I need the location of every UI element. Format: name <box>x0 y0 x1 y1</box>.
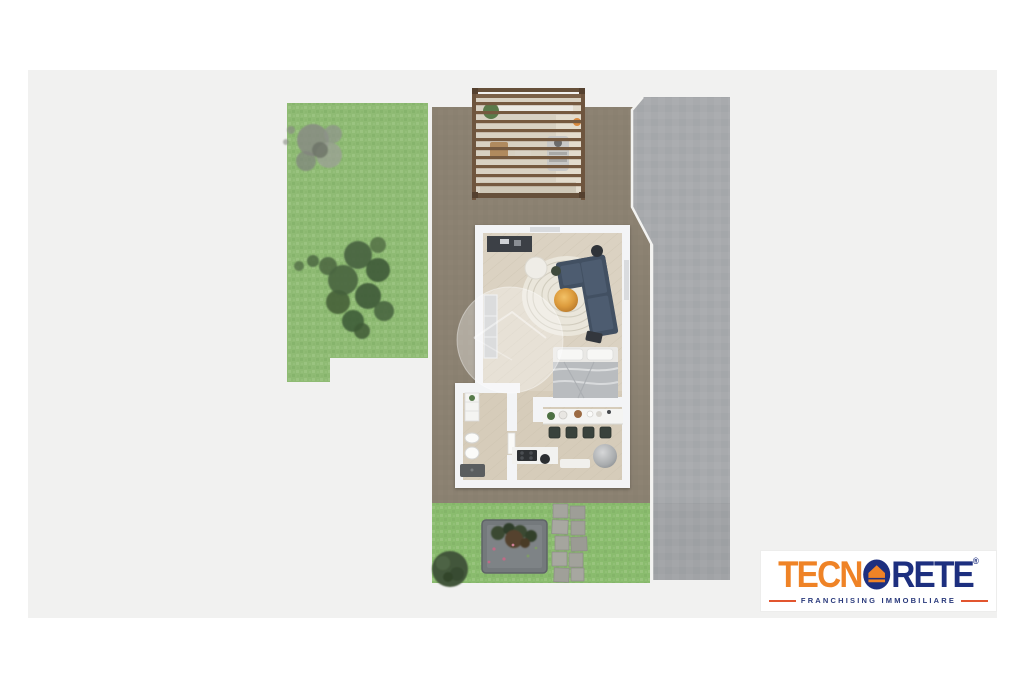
doormat <box>560 459 590 468</box>
pergola <box>472 88 585 200</box>
floor-lamp <box>591 245 603 257</box>
round-table <box>593 444 617 468</box>
floorplan-photo: TECN RETE ® FRANCHISING IMMOBILIARE <box>28 70 997 618</box>
tecnorete-logo: TECN RETE ® FRANCHISING IMMOBILIARE <box>760 550 997 612</box>
pillow <box>587 349 613 360</box>
plant-pot <box>551 266 561 276</box>
brand-text-rete: RETE <box>891 556 973 593</box>
paver <box>554 568 569 583</box>
tagline-rule-left <box>769 600 796 602</box>
franchising-tagline: FRANCHISING IMMOBILIARE <box>767 596 990 605</box>
kitchen-bar <box>543 409 623 424</box>
page-background: TECN RETE ® FRANCHISING IMMOBILIARE <box>0 0 1024 682</box>
paver <box>571 521 585 535</box>
cooktop <box>517 450 537 461</box>
bathroom-right-wall <box>507 391 517 431</box>
tv-cabinet <box>487 236 532 252</box>
bar-stool <box>549 427 560 438</box>
bar-stool <box>583 427 594 438</box>
kitchen-counter <box>512 447 558 464</box>
tecnorete-wordmark: TECN RETE ® <box>778 556 979 593</box>
bar-plant-icon <box>547 412 555 420</box>
toilet <box>465 447 479 459</box>
bush-icon <box>432 551 468 587</box>
window <box>624 260 629 300</box>
watermark-badge <box>457 287 563 393</box>
coffee-pouf <box>554 288 578 312</box>
bed <box>553 347 618 398</box>
paver <box>553 504 568 518</box>
planter-box <box>482 520 547 573</box>
inner-wall-stub <box>533 397 543 422</box>
bar-stool <box>566 427 577 438</box>
tagline-text: FRANCHISING IMMOBILIARE <box>801 596 956 605</box>
paver <box>571 568 584 581</box>
kettle <box>540 454 550 464</box>
bar-stool <box>600 427 611 438</box>
paver <box>555 536 569 550</box>
side-pouf <box>525 257 547 279</box>
paver <box>552 552 567 566</box>
paver <box>552 520 568 535</box>
paver <box>569 553 583 567</box>
paver <box>570 506 585 519</box>
window <box>530 227 560 232</box>
sink <box>465 433 479 443</box>
registered-trademark: ® <box>973 557 979 566</box>
floorplan-graphic <box>28 70 997 618</box>
inner-wall <box>533 397 623 407</box>
paver <box>571 537 587 552</box>
brand-text-tecn: TECN <box>778 556 861 593</box>
tagline-rule-right <box>961 600 988 602</box>
tecnorete-o-house-icon <box>862 559 890 590</box>
